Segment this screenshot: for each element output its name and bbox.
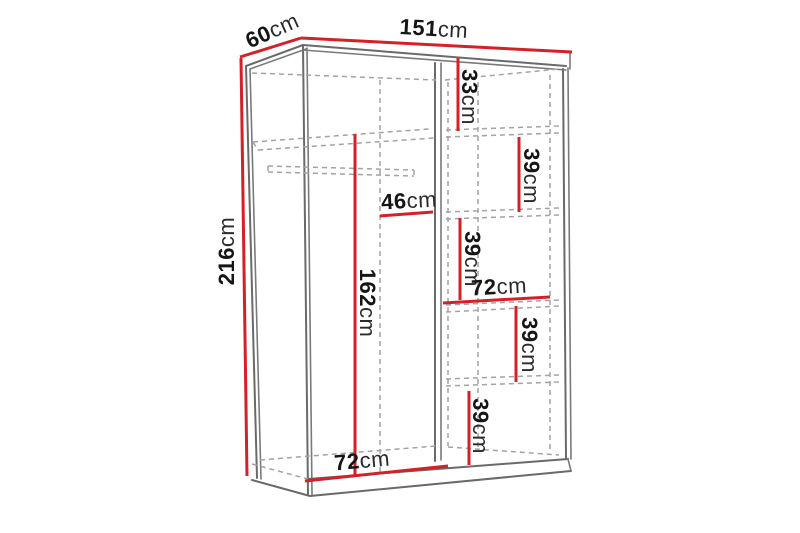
shelf-hidden-line [446, 133, 559, 137]
dim-label-39-1: 39cm [520, 148, 545, 204]
structure-line [568, 68, 571, 459]
diagram-canvas: 216cm 60cm 151cm 33cm 39cm 46cm 39cm 72c… [0, 0, 800, 533]
wardrobe-dimension-diagram: 216cm 60cm 151cm 33cm 39cm 46cm 39cm 72c… [0, 0, 800, 533]
shelf-hidden-line [446, 126, 559, 130]
shelf-hidden-line [446, 375, 559, 379]
shelf-hidden-line [446, 382, 559, 386]
shelf-hidden-line [446, 306, 559, 312]
dimension-line-height-216 [241, 58, 247, 476]
dim-label-46: 46cm [380, 186, 437, 214]
dimension-lines [240, 38, 572, 481]
dim-label-39-4: 39cm [469, 398, 494, 454]
dim-label-width: 151cm [399, 13, 469, 42]
centre-partition [435, 63, 441, 461]
shelf-hidden-line [253, 142, 258, 150]
wardrobe-outline [246, 45, 571, 495]
structure-line [252, 480, 310, 496]
structure-line [568, 459, 571, 471]
shelf-hidden-line [446, 208, 559, 212]
dim-label-33: 33cm [458, 69, 483, 125]
shelf-hidden-line [446, 215, 559, 219]
dim-label-72-bottom: 72cm [333, 445, 391, 475]
hidden-line [448, 447, 559, 455]
dim-label-162: 162cm [356, 269, 381, 338]
hanging-rail-line [268, 166, 414, 170]
dim-label-72-right: 72cm [470, 272, 527, 300]
dim-label-39-3: 39cm [518, 317, 543, 373]
structure-line [310, 471, 571, 496]
hidden-line [252, 73, 436, 80]
dim-label-height: 216cm [214, 217, 239, 286]
left-compartment-interior [253, 129, 434, 176]
structure-line [563, 69, 566, 458]
hanging-rail-line [268, 172, 414, 176]
